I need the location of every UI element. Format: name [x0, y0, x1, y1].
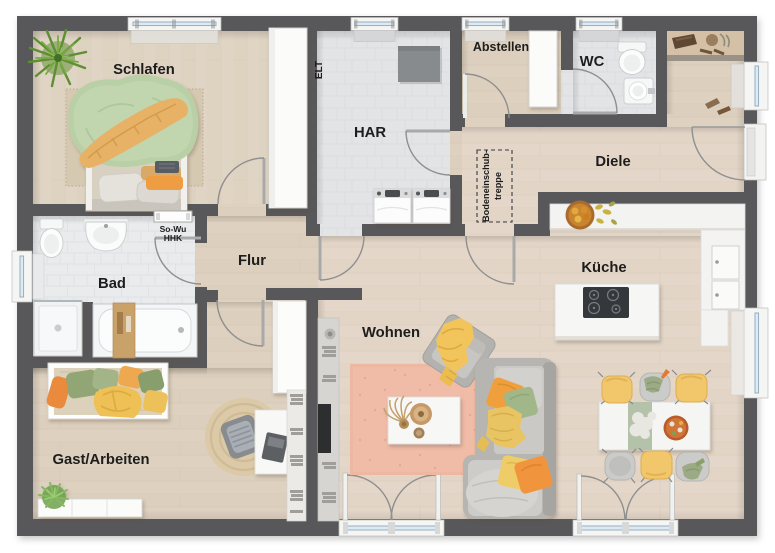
svg-text:Flur: Flur — [238, 253, 266, 269]
svg-text:HHK: HHK — [164, 233, 183, 243]
svg-text:ELT: ELT — [314, 61, 325, 79]
svg-text:treppe: treppe — [493, 172, 503, 200]
svg-text:Abstellen: Abstellen — [473, 40, 529, 54]
svg-text:HAR: HAR — [354, 125, 386, 141]
svg-text:Küche: Küche — [581, 260, 626, 276]
svg-text:Bodeneinschub-: Bodeneinschub- — [481, 150, 491, 222]
svg-text:Wohnen: Wohnen — [362, 325, 420, 341]
svg-text:Bad: Bad — [98, 276, 126, 292]
svg-text:Gast/Arbeiten: Gast/Arbeiten — [52, 452, 149, 468]
svg-text:Diele: Diele — [595, 154, 630, 170]
svg-text:WC: WC — [580, 54, 605, 70]
